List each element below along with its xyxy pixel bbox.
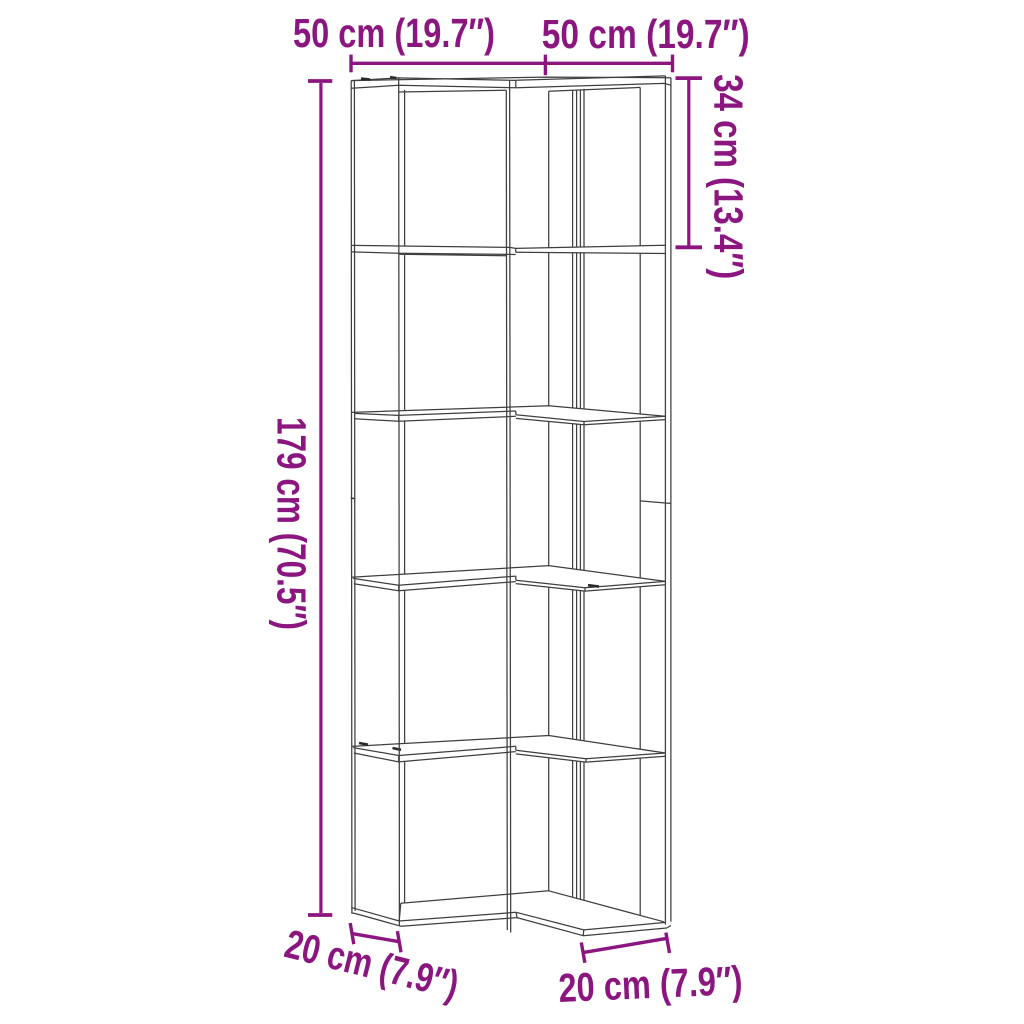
svg-text:179 cm (70.5″): 179 cm (70.5″) (269, 417, 315, 630)
svg-text:34 cm (13.4″): 34 cm (13.4″) (706, 74, 752, 279)
svg-text:50 cm (19.7″): 50 cm (19.7″) (542, 11, 750, 57)
svg-text:50 cm (19.7″): 50 cm (19.7″) (293, 10, 495, 56)
svg-text:20 cm (7.9″): 20 cm (7.9″) (557, 957, 743, 1011)
